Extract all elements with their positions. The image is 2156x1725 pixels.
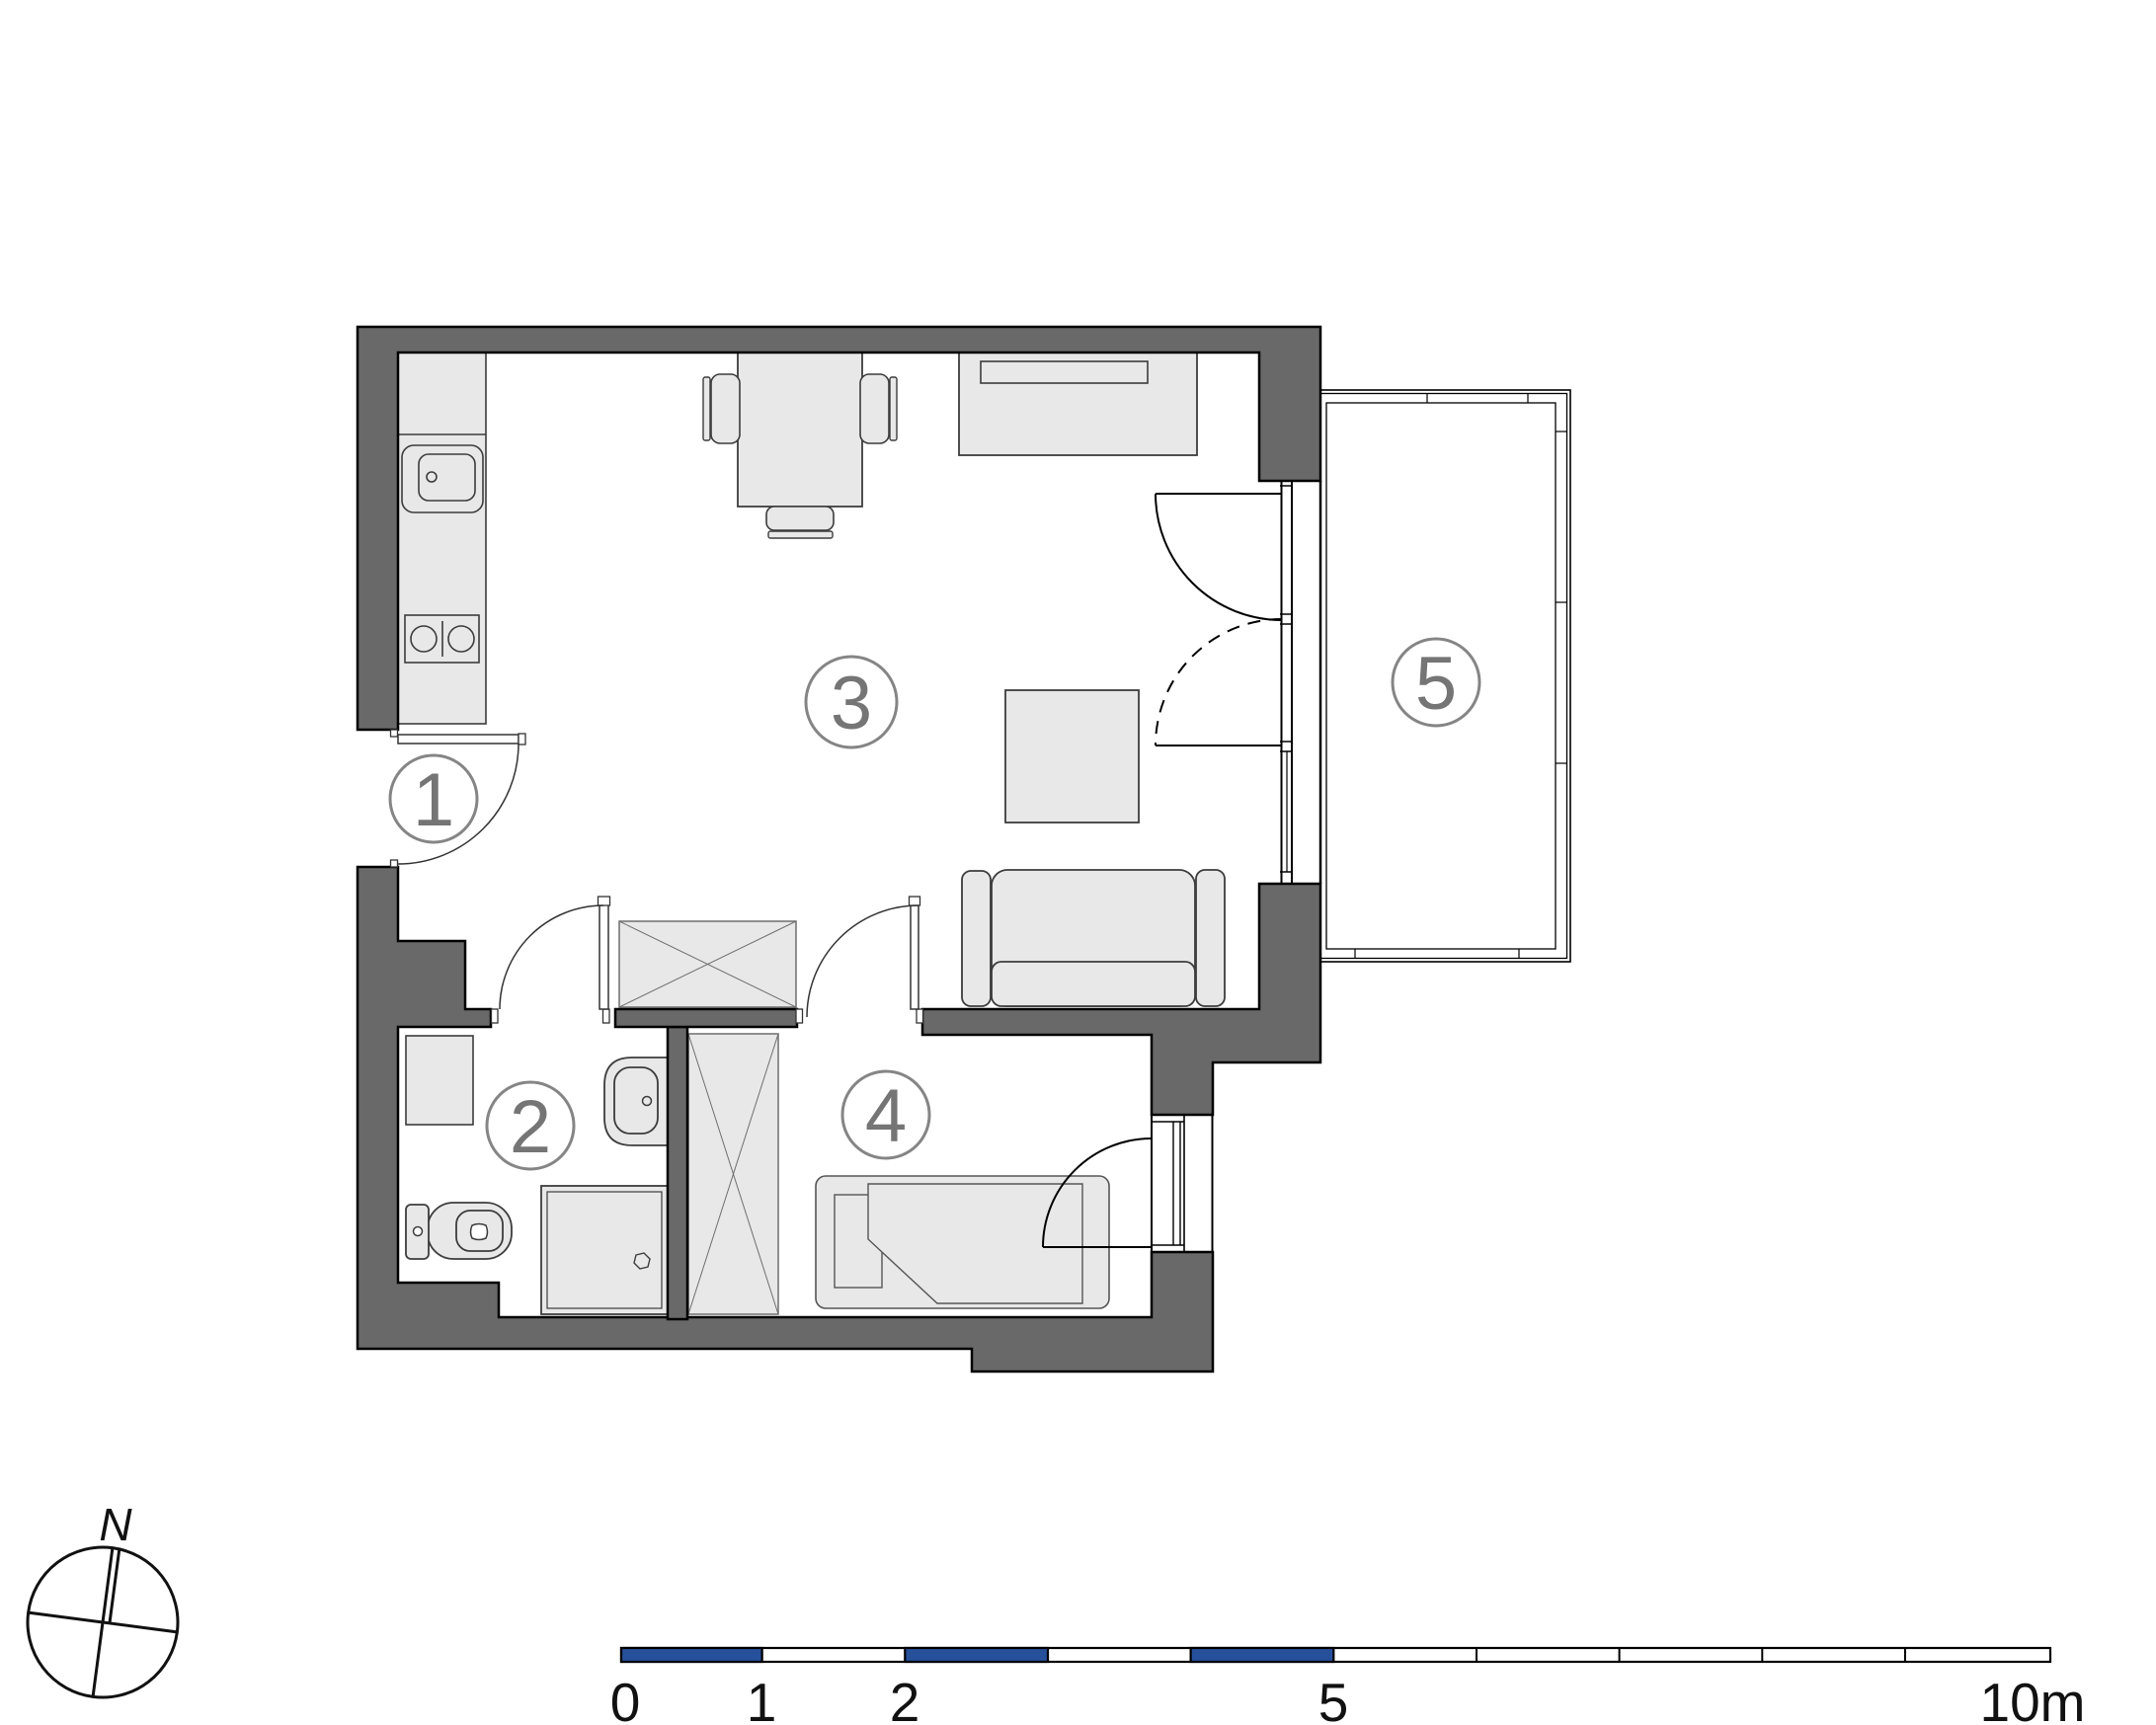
svg-text:10m: 10m <box>1980 1672 2086 1725</box>
svg-text:1: 1 <box>747 1672 777 1725</box>
svg-text:4: 4 <box>865 1074 907 1158</box>
svg-text:2: 2 <box>510 1085 551 1169</box>
svg-text:N: N <box>99 1499 132 1550</box>
svg-text:5: 5 <box>1415 642 1457 726</box>
svg-text:5: 5 <box>1318 1672 1349 1725</box>
svg-text:3: 3 <box>831 662 872 745</box>
svg-text:1: 1 <box>413 758 454 842</box>
svg-text:2: 2 <box>890 1672 920 1725</box>
svg-text:0: 0 <box>610 1672 641 1725</box>
